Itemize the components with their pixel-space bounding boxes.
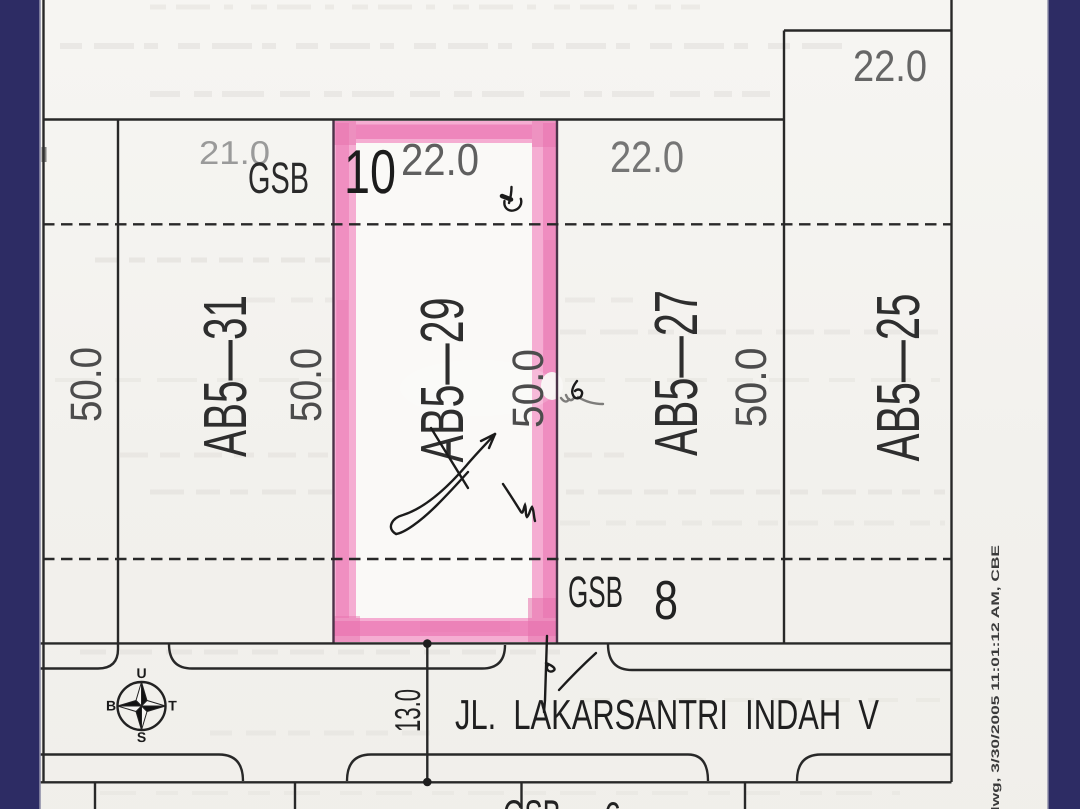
svg-text:AB5—31: AB5—31	[191, 295, 259, 457]
svg-text:T: T	[168, 698, 177, 714]
svg-text:JL. LAKARSANTRI INDAH V: JL. LAKARSANTRI INDAH V	[455, 691, 879, 738]
svg-text:22.0: 22.0	[853, 42, 927, 91]
svg-text:AB5—27: AB5—27	[642, 290, 710, 456]
svg-text:22.0: 22.0	[401, 134, 479, 185]
svg-text:50.0: 50.0	[727, 348, 776, 428]
svg-text:U: U	[136, 665, 146, 681]
svg-text:S: S	[137, 729, 146, 745]
svg-text:6: 6	[604, 794, 621, 809]
svg-text:AB5—25: AB5—25	[864, 294, 932, 462]
svg-text:50.0: 50.0	[62, 347, 111, 422]
svg-text:GSB: GSB	[503, 792, 561, 809]
svg-text:22.0: 22.0	[610, 133, 684, 182]
svg-text:10: 10	[344, 138, 396, 207]
svg-text:GSB: GSB	[248, 154, 309, 203]
svg-text:13.0: 13.0	[387, 689, 428, 732]
svg-text:50.0: 50.0	[282, 348, 331, 422]
svg-text:50.0: 50.0	[504, 349, 553, 428]
svg-text:AB5—29: AB5—29	[408, 298, 476, 463]
svg-text:B: B	[106, 698, 116, 714]
svg-text:GSB: GSB	[568, 568, 623, 617]
svg-text:8: 8	[654, 569, 678, 631]
svg-text:dwg, 3/30/2005 11:01:12 AM, CB: dwg, 3/30/2005 11:01:12 AM, CBE	[990, 545, 1002, 809]
